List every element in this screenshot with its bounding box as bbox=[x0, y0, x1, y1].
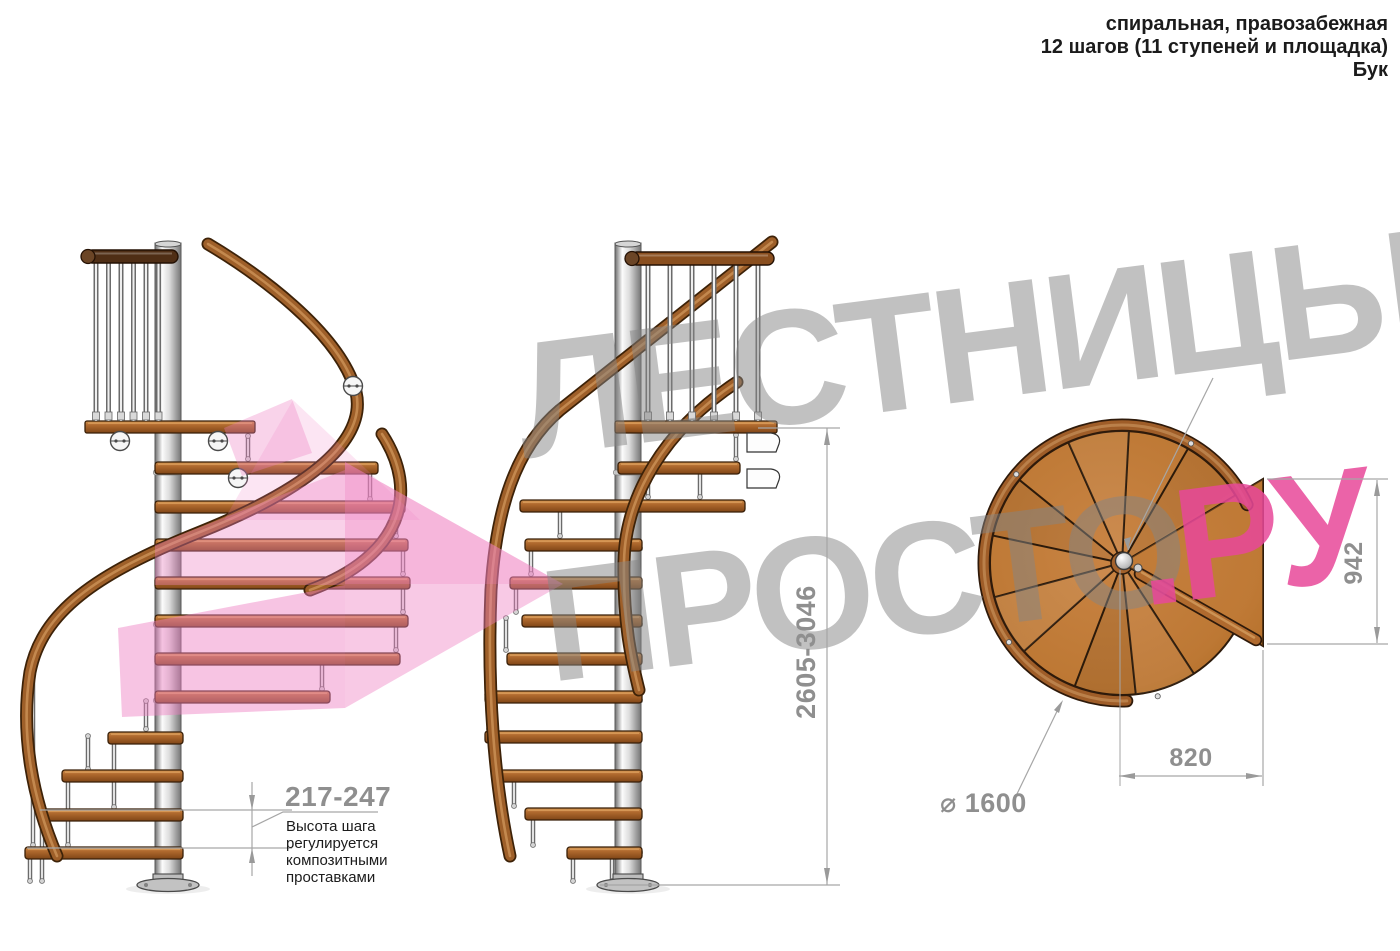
baluster-foot bbox=[143, 412, 150, 420]
arrow-820-left bbox=[1119, 773, 1135, 779]
medallion-dot bbox=[240, 476, 243, 479]
spec-line-material: Бук bbox=[1353, 59, 1389, 81]
label-diameter: ⌀ 1600 bbox=[940, 788, 1027, 818]
medallion-dot bbox=[220, 439, 223, 442]
pole-cap bbox=[155, 241, 181, 247]
spec-line-type: спиральная, правозабежная bbox=[1106, 13, 1388, 35]
baluster-foot bbox=[93, 412, 100, 420]
medallion-dot bbox=[122, 439, 125, 442]
baluster-foot bbox=[155, 412, 162, 420]
arrow-942-top bbox=[1374, 480, 1380, 496]
baluster-foot bbox=[130, 412, 137, 420]
label-landing-depth: 942 bbox=[1340, 541, 1368, 584]
baluster-joint bbox=[504, 648, 509, 653]
arrow-total-bottom bbox=[824, 868, 830, 884]
medallion-dot bbox=[212, 439, 215, 442]
ring-bolt bbox=[1188, 441, 1193, 446]
baluster-joint bbox=[512, 804, 517, 809]
note-line-1: Высота шага bbox=[286, 818, 376, 835]
handrail-end-cap bbox=[81, 250, 95, 264]
baluster-joint bbox=[144, 727, 149, 732]
arrow-diameter bbox=[1054, 700, 1063, 713]
top-handrail bbox=[630, 252, 774, 265]
arrow-942-bottom bbox=[1374, 627, 1380, 643]
baluster-foot bbox=[105, 412, 112, 420]
step-bracket bbox=[747, 469, 780, 488]
flange-bolt bbox=[188, 883, 192, 887]
top-handrail bbox=[86, 250, 178, 263]
staircase-drawing: ЛЕСТНИЦЫ ПРОСТО .РУ bbox=[0, 0, 1400, 951]
leader-diameter bbox=[1016, 703, 1061, 796]
note-line-2: регулируется bbox=[286, 835, 378, 852]
medallion-dot bbox=[355, 384, 358, 387]
baluster-joint bbox=[698, 495, 703, 500]
baluster-joint bbox=[28, 879, 33, 884]
spec-line-steps: 12 шагов (11 ступеней и площадка) bbox=[1041, 36, 1388, 58]
arrow-step-bottom bbox=[249, 848, 255, 863]
flange-bolt bbox=[144, 883, 148, 887]
note-line-4: проставками bbox=[286, 869, 375, 886]
pole-cap bbox=[615, 241, 641, 247]
handrail-end-cap bbox=[625, 252, 639, 266]
ring-bolt bbox=[1155, 694, 1160, 699]
baluster-joint bbox=[531, 843, 536, 848]
label-total-height: 2605-3046 bbox=[791, 585, 821, 719]
baluster-joint bbox=[86, 734, 91, 739]
note-line-3: композитными bbox=[286, 852, 388, 869]
arrow-820-right bbox=[1246, 773, 1262, 779]
baluster-joint bbox=[40, 879, 45, 884]
baluster-joint bbox=[646, 495, 651, 500]
watermark-word-ru: .РУ bbox=[1125, 432, 1387, 640]
arrow-facet-band-lower bbox=[118, 585, 345, 717]
label-step-height: 217-247 bbox=[285, 781, 391, 812]
baluster-foot bbox=[118, 412, 125, 420]
spec-text-block: спиральная, правозабежная 12 шагов (11 с… bbox=[1041, 13, 1389, 81]
medallion-dot bbox=[347, 384, 350, 387]
label-landing-width: 820 bbox=[1169, 744, 1212, 772]
medallion-dot bbox=[114, 439, 117, 442]
arrow-step-top bbox=[249, 795, 255, 810]
drawing-canvas: ЛЕСТНИЦЫ ПРОСТО .РУ bbox=[0, 0, 1400, 951]
medallion-dot bbox=[232, 476, 235, 479]
baluster-joint bbox=[571, 879, 576, 884]
